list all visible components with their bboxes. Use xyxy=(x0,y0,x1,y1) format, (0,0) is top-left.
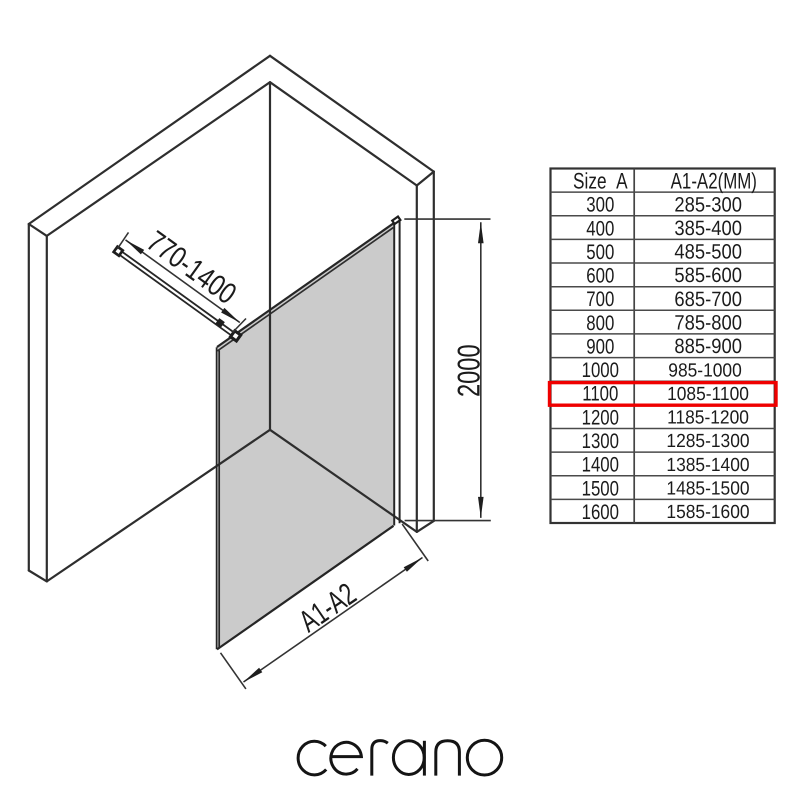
svg-text:585-600: 585-600 xyxy=(674,264,742,287)
svg-text:1200: 1200 xyxy=(582,406,619,429)
svg-text:1600: 1600 xyxy=(582,501,619,524)
svg-text:285-300: 285-300 xyxy=(674,193,742,216)
svg-text:Size A: Size A xyxy=(573,168,628,193)
svg-text:1300: 1300 xyxy=(582,430,619,453)
svg-text:1185-1200: 1185-1200 xyxy=(667,408,749,429)
svg-text:300: 300 xyxy=(586,194,614,217)
svg-text:400: 400 xyxy=(586,217,614,240)
svg-text:1500: 1500 xyxy=(582,477,619,500)
svg-text:785-800: 785-800 xyxy=(674,311,742,334)
svg-text:385-400: 385-400 xyxy=(674,217,742,240)
svg-text:1085-1100: 1085-1100 xyxy=(667,384,749,405)
svg-text:485-500: 485-500 xyxy=(674,241,742,264)
svg-text:1285-1300: 1285-1300 xyxy=(666,431,749,452)
svg-text:A1-A2(MM): A1-A2(MM) xyxy=(671,168,757,193)
svg-text:800: 800 xyxy=(586,312,614,335)
svg-text:900: 900 xyxy=(586,336,614,359)
svg-text:1100: 1100 xyxy=(582,383,618,406)
svg-text:700: 700 xyxy=(586,288,614,311)
svg-text:885-900: 885-900 xyxy=(674,335,742,358)
svg-text:1585-1600: 1585-1600 xyxy=(666,502,749,523)
svg-text:500: 500 xyxy=(586,241,614,264)
svg-text:1400: 1400 xyxy=(582,454,619,477)
svg-text:985-1000: 985-1000 xyxy=(668,360,741,381)
svg-text:685-700: 685-700 xyxy=(674,288,742,311)
svg-text:2000: 2000 xyxy=(451,344,487,397)
svg-text:600: 600 xyxy=(586,265,614,288)
svg-text:1385-1400: 1385-1400 xyxy=(666,455,749,476)
svg-text:1000: 1000 xyxy=(582,359,619,382)
svg-text:1485-1500: 1485-1500 xyxy=(666,479,749,500)
